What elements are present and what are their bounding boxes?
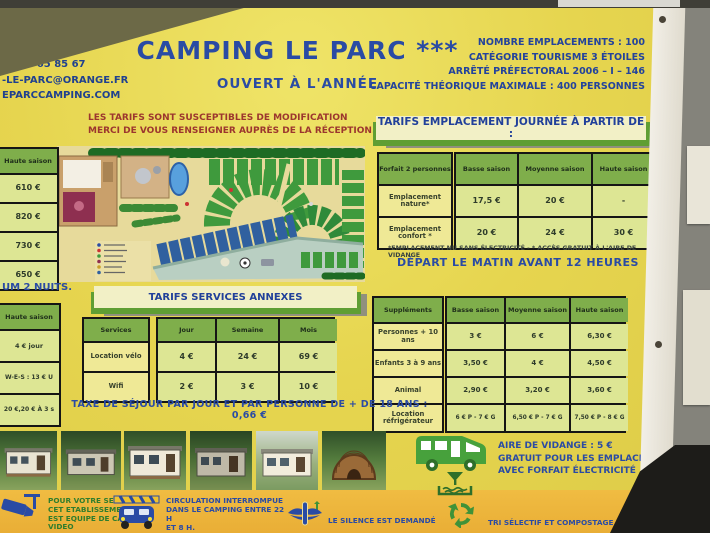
price-cell: 6 € (506, 324, 569, 349)
departure-rule: DÉPART LE MATIN AVANT 12 HEURES (397, 256, 639, 269)
cctv-camera-icon (0, 493, 46, 529)
barrier-car-icon (112, 494, 162, 531)
emplacement-title-bar: TARIFS EMPLACEMENT JOURNÉE À PARTIR DE : (376, 116, 646, 140)
price-cell: 24 € (217, 343, 278, 371)
moon-icon (221, 258, 230, 267)
price-cell: 4 € (158, 343, 215, 371)
contact-line: EPARCCAMPING.COM (2, 88, 128, 104)
price-cell: 3,50 € (447, 351, 504, 376)
circulation-text: CIRCULATION INTERROMPUE DANS LE CAMPING … (166, 496, 288, 533)
footer-strip: POUR VOTRE SECURITE CET ETABLISSEMENT ES… (0, 490, 710, 533)
column-header: Basse saison (456, 154, 517, 184)
circulation-line: ET 8 H. (166, 523, 288, 532)
price-cell: 17,5 € (456, 186, 517, 216)
posted-paper (687, 146, 710, 224)
price-cell: 20 €,20 € À 3 s (0, 395, 59, 425)
info-line: ARRÊTÉ PRÉFECTORAL 2006 – I – 146 (345, 65, 645, 80)
info-line: NOMBRE EMPLACEMENTS : 100 (345, 36, 645, 51)
tourist-tax-line: TAXE DE SÉJOUR PAR JOUR ET PAR PERSONNE … (62, 399, 437, 421)
info-block: NOMBRE EMPLACEMENTS : 100 CATÉGORIE TOUR… (345, 36, 645, 94)
price-cell: 3,20 € (506, 378, 569, 403)
corner-header: Forfait 2 personnes (379, 154, 451, 184)
column-header: Haute saison (571, 298, 628, 322)
price-cell: 6,30 € (571, 324, 628, 349)
price-cell: 24 € (519, 218, 591, 248)
price-cell: 6,50 € P - 7 € G (506, 405, 569, 431)
minimum-nights-note: UM 2 NUITS. (2, 282, 72, 293)
price-cell: 2,90 € (447, 378, 504, 403)
price-cell: 3,60 € (571, 378, 628, 403)
motorhome-icon (412, 428, 490, 474)
column-header: Moyenne saison (519, 154, 591, 184)
column-header: Mois (280, 319, 337, 341)
price-cell: 2 € (158, 373, 215, 401)
screw (655, 341, 662, 348)
price-cell: 4,50 € (571, 351, 628, 376)
barrel-cabin-photo (322, 431, 386, 491)
row-label: Emplacement nature* (379, 186, 451, 216)
row-label: Enfants 3 à 9 ans (374, 351, 442, 376)
row-label: Personnes + 10 ans (374, 324, 442, 349)
row-label: Wifi (84, 373, 148, 401)
services-label-column: Services Location vélo Wifi (82, 317, 150, 403)
car-icon (261, 259, 274, 266)
corner-header: Suppléments (374, 298, 442, 322)
column-header: Jour (158, 319, 215, 341)
price-cell: 4 € (506, 351, 569, 376)
price-cell: 20 € (519, 186, 591, 216)
price-cell: 69 € (280, 343, 337, 371)
price-cell: W-E-S : 13 € U (0, 363, 59, 393)
price-cell: 820 € (0, 204, 57, 231)
circulation-line: DANS LE CAMPING ENTRE 22 H (166, 505, 288, 523)
recycling-icon (444, 500, 478, 528)
silence-text: LE SILENCE EST DEMANDÉ (328, 516, 446, 525)
column-header: Moyenne saison (506, 298, 569, 322)
wall-sliver (558, 0, 680, 7)
price-cell: 30 € (593, 218, 654, 248)
column-header: Haute saison (0, 149, 57, 173)
price-cell: 730 € (0, 233, 57, 260)
price-cell: 20 € (456, 218, 517, 248)
services-title-bar: TARIFS SERVICES ANNEXES (94, 286, 357, 308)
services-grid: Jour Semaine Mois 4 € 24 € 69 € 2 € 3 € … (156, 317, 335, 403)
price-cell: 4 € jour (0, 331, 59, 361)
row-label: Emplacement confort * (379, 218, 451, 248)
silence-lips-icon (286, 501, 324, 528)
tariff-notice: LES TARIFS SONT SUSCEPTIBLES DE MODIFICA… (88, 112, 375, 138)
map-legend (95, 241, 151, 281)
emplacement-label-column: Forfait 2 personnes Emplacement nature* … (377, 152, 453, 250)
drain-station-icon (433, 472, 477, 500)
row-label: Location vélo (84, 343, 148, 371)
price-cell: - (593, 186, 654, 216)
notice-line2: MERCI DE VOUS RENSEIGNER AUPRÈS DE LA RÉ… (88, 125, 375, 138)
mobile-home-photo (256, 431, 318, 491)
price-cell: 10 € (280, 373, 337, 401)
price-cell: 3 € (217, 373, 278, 401)
mobile-home-photo (0, 431, 57, 491)
mobile-home-photo (190, 431, 252, 491)
column-header: Basse saison (447, 298, 504, 322)
column-header: Semaine (217, 319, 278, 341)
circulation-line: CIRCULATION INTERROMPUE (166, 496, 288, 505)
left-week-table: Haute saison 4 € jour W-E-S : 13 € U 20 … (0, 303, 61, 427)
screw (659, 16, 666, 23)
emplacement-grid: Basse saison Moyenne saison Haute saison… (454, 152, 652, 250)
left-rates-table: Haute saison 610 € 820 € 730 € 650 € (0, 147, 59, 291)
info-line: CATÉGORIE TOURISME 3 ÉTOILES (345, 51, 645, 66)
supplements-grid: Basse saison Moyenne saison Haute saison… (445, 296, 626, 433)
campground-map (57, 146, 365, 282)
column-header: Haute saison (0, 305, 59, 329)
recycling-text: TRI SÉLECTIF ET COMPOSTAGE (488, 518, 618, 527)
price-cell: 610 € (0, 175, 57, 202)
column-header: Haute saison (593, 154, 654, 184)
corner-header: Services (84, 319, 148, 341)
mobile-home-photo (61, 431, 121, 491)
price-cell: 3 € (447, 324, 504, 349)
notice-line1: LES TARIFS SONT SUSCEPTIBLES DE MODIFICA… (88, 112, 375, 125)
price-cell: 7,50 € P - 8 € G (571, 405, 628, 431)
corner-shadow (0, 4, 258, 76)
posted-paper (683, 290, 710, 405)
mobile-home-photo (124, 431, 186, 491)
sign-photo: TE DE MAUGUIO 970 LATTES 04 67 65 85 67 … (0, 0, 710, 533)
info-line: CAPACITÉ THÉORIQUE MAXIMALE : 400 PERSON… (345, 80, 645, 95)
